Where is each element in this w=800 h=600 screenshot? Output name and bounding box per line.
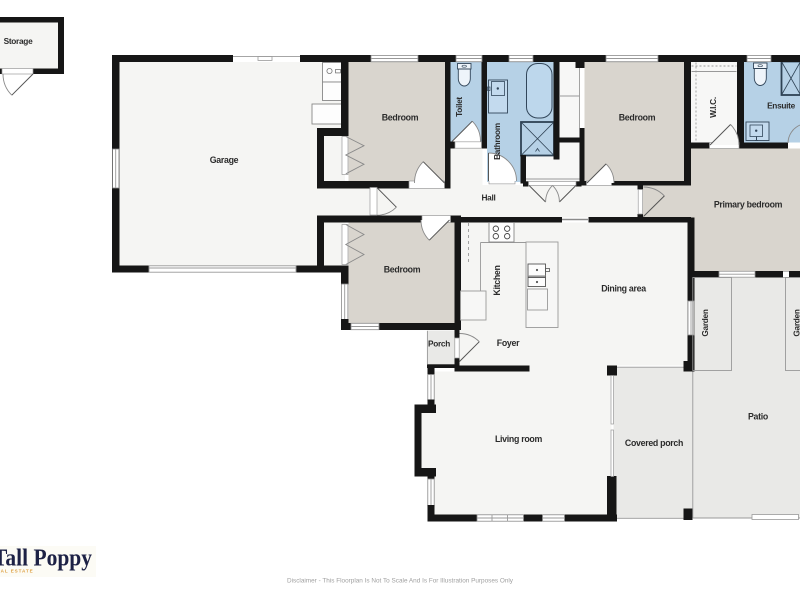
svg-text:Porch: Porch <box>428 339 450 349</box>
svg-text:Foyer: Foyer <box>497 338 520 348</box>
svg-text:Dining area: Dining area <box>601 284 646 294</box>
svg-text:Living room: Living room <box>495 434 543 444</box>
svg-text:Storage: Storage <box>4 36 33 46</box>
svg-text:Bathroom: Bathroom <box>492 123 502 160</box>
svg-text:Hall: Hall <box>481 193 495 203</box>
svg-text:W.I.C.: W.I.C. <box>708 97 718 118</box>
svg-text:Primary bedroom: Primary bedroom <box>714 200 783 210</box>
svg-text:Garden: Garden <box>792 309 800 336</box>
svg-text:REAL ESTATE: REAL ESTATE <box>0 568 34 573</box>
svg-text:Bedroom: Bedroom <box>619 113 656 123</box>
svg-text:Toilet: Toilet <box>454 97 464 117</box>
svg-text:Covered porch: Covered porch <box>625 438 683 448</box>
svg-text:Garage: Garage <box>210 155 239 165</box>
svg-text:Bedroom: Bedroom <box>382 113 419 123</box>
svg-text:Kitchen: Kitchen <box>492 265 502 295</box>
svg-text:Garden: Garden <box>700 309 710 336</box>
svg-text:Disclaimer - This Floorplan Is: Disclaimer - This Floorplan Is Not To Sc… <box>287 578 514 585</box>
svg-text:Bedroom: Bedroom <box>384 265 421 275</box>
svg-text:Patio: Patio <box>748 412 769 422</box>
svg-text:Ensuite: Ensuite <box>767 101 796 111</box>
